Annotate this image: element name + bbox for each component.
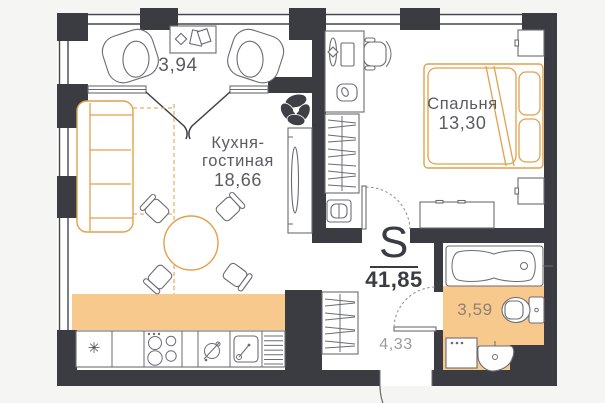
kitchen-living-area: 18,66 [168, 171, 308, 189]
sofa [77, 101, 133, 232]
floor-plan: 3,94 Кухня- гостиная 18,66 Спальня 13,30… [0, 0, 605, 403]
sink-icon [234, 336, 258, 362]
bedroom-name: Спальня [405, 95, 520, 113]
loggia-side-table [170, 26, 216, 53]
dish-drainer-icon [264, 336, 283, 364]
bedroom-label: Спальня 13,30 [405, 95, 520, 132]
fridge-snowflake-icon: ✳ [82, 340, 106, 358]
entrance-door [380, 370, 432, 403]
nightstand-top [515, 30, 544, 56]
desk [325, 31, 364, 112]
kitchen-living-name-line1: Кухня- [168, 134, 308, 152]
loggia-area-label: 3,94 [138, 57, 218, 75]
hallway-area-label: 4,33 [366, 336, 426, 354]
toilet [502, 297, 544, 323]
washing-machine [446, 338, 477, 368]
bathtub [446, 246, 553, 286]
kitchen-counter [76, 331, 285, 367]
kitchen-living-label: Кухня- гостиная 18,66 [168, 134, 308, 189]
bedroom-cabinet [327, 200, 351, 222]
total-area-symbol: S [352, 222, 436, 264]
hallway-closet [322, 292, 358, 354]
kitchen-living-name-line2: гостиная [168, 152, 308, 170]
total-area-value: 41,85 [352, 271, 436, 289]
bedroom-area: 13,30 [405, 114, 520, 132]
total-area-label: S 41,85 [352, 222, 436, 289]
nightstand-bottom [515, 178, 544, 204]
kitchen-zone-floor [72, 294, 285, 330]
bedroom-wardrobe [325, 114, 359, 193]
bathroom-area-label: 3,59 [445, 301, 505, 319]
dining-table [164, 216, 218, 270]
